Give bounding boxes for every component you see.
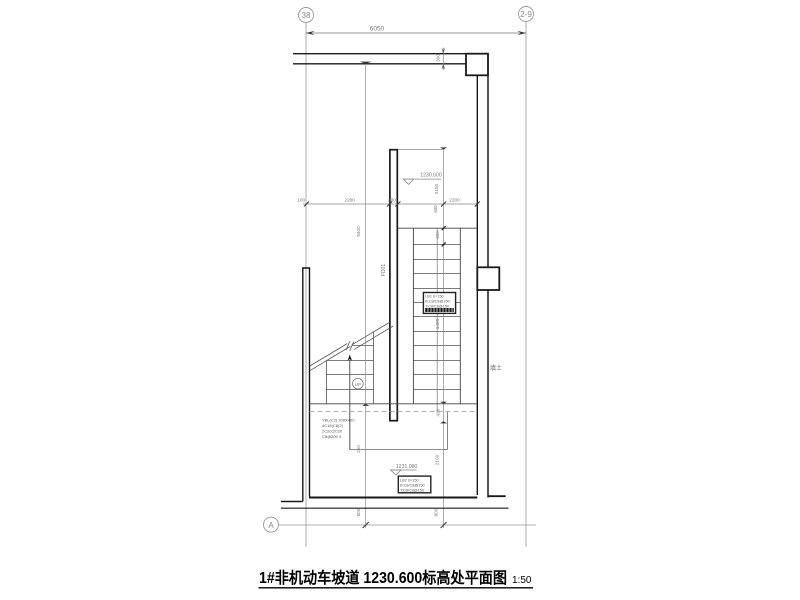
svg-text:6050: 6050	[370, 26, 385, 33]
svg-text:1230.600: 1230.600	[420, 173, 442, 179]
svg-text:LB2 h=150: LB2 h=150	[400, 478, 418, 482]
svg-text:600: 600	[434, 508, 439, 516]
svg-text:填土: 填土	[490, 364, 502, 372]
svg-text:200: 200	[388, 198, 396, 203]
svg-text:B:C8/C8@150: B:C8/C8@150	[400, 484, 425, 488]
svg-text:T:C8/C8@150: T:C8/C8@150	[425, 305, 449, 309]
svg-text:1480: 1480	[435, 318, 440, 329]
svg-text:38: 38	[302, 11, 311, 20]
svg-text:9400: 9400	[356, 226, 361, 237]
svg-text:100: 100	[297, 198, 305, 203]
svg-text:1231.080: 1231.080	[396, 464, 418, 470]
svg-text:C8@200 4: C8@200 4	[322, 434, 342, 439]
svg-text:2C20;2C20: 2C20;2C20	[322, 429, 343, 434]
svg-text:420: 420	[436, 408, 441, 416]
svg-text:UP: UP	[355, 382, 361, 387]
svg-text:1:50: 1:50	[512, 575, 532, 586]
svg-text:4C18(C8(2): 4C18(C8(2)	[322, 423, 344, 428]
svg-text:2200: 2200	[344, 198, 355, 203]
svg-text:2150: 2150	[434, 183, 439, 194]
svg-text:2-9: 2-9	[520, 10, 532, 19]
svg-text:1#非机动车坡道 1230.600标高处平面图: 1#非机动车坡道 1230.600标高处平面图	[259, 568, 507, 587]
svg-text:YBL(C2) 200X400: YBL(C2) 200X400	[322, 418, 355, 423]
svg-text:300: 300	[436, 54, 441, 62]
svg-text:2100: 2100	[435, 454, 440, 465]
svg-text:B:C8/C8@150: B:C8/C8@150	[425, 300, 450, 304]
svg-text:600: 600	[356, 508, 361, 516]
svg-text:LB1 h=150: LB1 h=150	[425, 295, 443, 299]
svg-text:600: 600	[433, 205, 438, 213]
svg-text:2200: 2200	[449, 198, 460, 203]
svg-text:FD01: FD01	[381, 264, 387, 276]
svg-text:A: A	[268, 521, 274, 530]
svg-text:250: 250	[356, 445, 361, 453]
svg-text:400: 400	[435, 231, 440, 239]
svg-text:T:C8/C8@150: T:C8/C8@150	[400, 489, 424, 493]
